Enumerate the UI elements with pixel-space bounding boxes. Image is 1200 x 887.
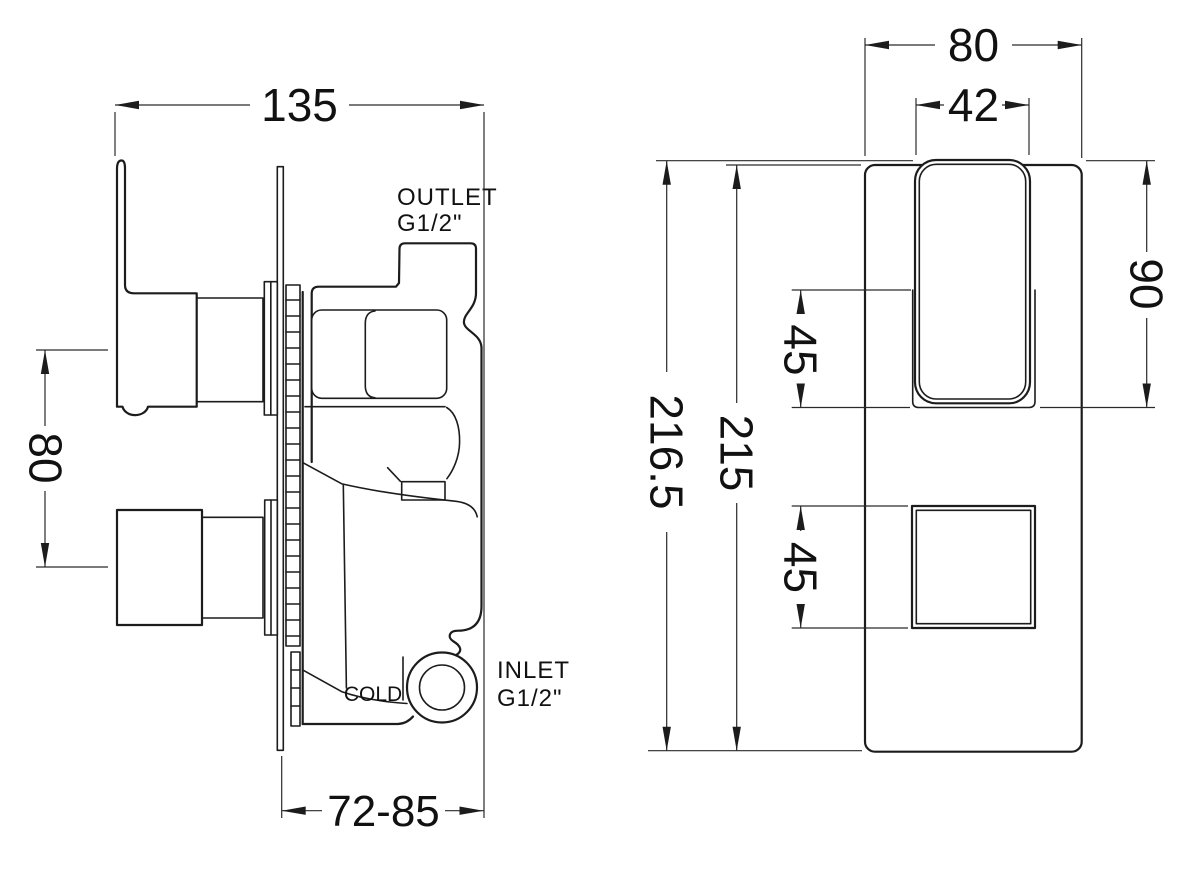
dim-plate-width-value: 80 [948,19,999,71]
arrowhead-up [797,506,805,530]
lower-control-stem [202,517,263,618]
side-view: OUTLET G1/2" INLET G1/2" COLD 135 80 [20,79,571,836]
cold-label: COLD [344,683,402,706]
inlet-label: INLET [497,657,570,684]
inlet-thread-label: G1/2" [497,685,563,712]
dim-upper-offset-value: 45 [775,324,827,375]
arrowhead-right [1058,41,1082,49]
valve-body-bottom-edge [303,717,413,725]
handle-front-outer [915,160,1030,403]
arrowhead-down [41,543,49,567]
arrowhead-left [916,101,940,109]
arrowhead-up [733,165,741,189]
arrowhead-down [733,727,741,751]
lower-control-knob [117,510,202,625]
dim-recess-value: 72-85 [327,787,440,836]
arrowhead-down [1143,384,1151,408]
upper-cartridge-box [312,310,447,398]
outlet-label: OUTLET [397,184,498,211]
arrowhead-left [282,807,306,815]
arrowhead-left [865,41,889,49]
dim-handle-width-42: 42 [916,79,1029,155]
arrowhead-right [460,807,484,815]
arrowhead-down [663,727,671,751]
arrowhead-up [663,161,671,185]
arrowhead-up [41,350,49,374]
arrowhead-down [797,604,805,628]
threaded-body-column [286,285,300,646]
arrowhead-right [460,101,484,109]
upper-control-stem [197,298,263,402]
arrowhead-down [797,384,805,408]
arrowhead-left [115,101,139,109]
arrowhead-up [1143,161,1151,185]
inlet-port-inner-circle [420,665,465,710]
valve-body-outline [312,243,482,655]
dim-handle-height-value: 90 [1121,258,1173,309]
outlet-thread-label: G1/2" [397,210,463,237]
lower-thread-stub [291,652,300,726]
lever-handle [117,161,197,416]
wall-plate-edge [277,167,283,751]
dim-lower-offset-value: 45 [775,542,827,593]
dim-handle-width-value: 42 [948,79,999,131]
valve-dimension-drawing: OUTLET G1/2" INLET G1/2" COLD 135 80 [0,0,1200,887]
weld-tick-line [388,468,401,482]
square-control-outer [912,506,1035,628]
arrowhead-right [1005,101,1029,109]
thermostat-housing-inner-edge [343,485,346,688]
dim-spacing-80: 80 [20,350,109,567]
dim-plate-height-215: 215 [711,165,861,751]
arrowhead-up [797,290,805,314]
technical-drawing-page: OUTLET G1/2" INLET G1/2" COLD 135 80 [0,0,1200,887]
dim-spacing-value: 80 [20,432,72,483]
dim-depth-value: 135 [261,79,338,131]
dim-recess-72-85: 72-85 [282,756,484,836]
front-view: 80 42 90 45 [641,19,1173,752]
body-right-bulge [447,408,460,479]
dim-plate-height-value: 215 [711,415,763,492]
dim-total-height-value: 216.5 [641,394,693,509]
